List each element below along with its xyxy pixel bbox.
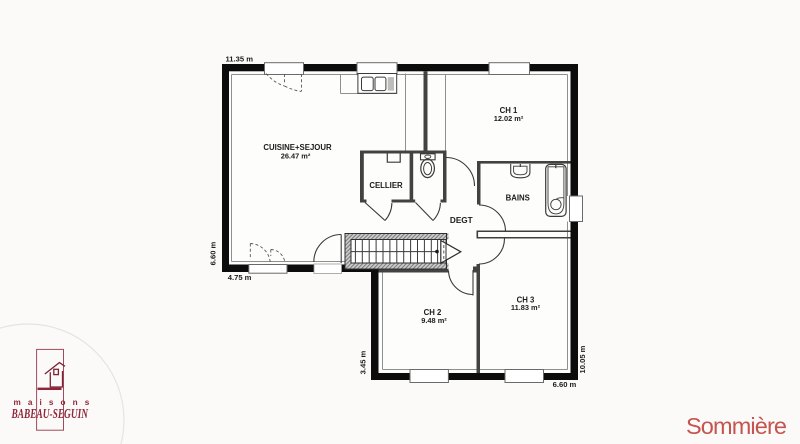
- svg-text:BAINS: BAINS: [506, 194, 530, 203]
- svg-text:BABEAU-SEGUIN: BABEAU-SEGUIN: [11, 407, 89, 422]
- svg-text:26.47 m²: 26.47 m²: [281, 152, 311, 161]
- svg-text:10.05 m: 10.05 m: [578, 345, 587, 373]
- svg-text:6.60 m: 6.60 m: [209, 241, 218, 265]
- svg-text:11.83 m²: 11.83 m²: [511, 303, 541, 312]
- svg-text:CELLIER: CELLIER: [369, 181, 403, 190]
- svg-text:12.02 m²: 12.02 m²: [494, 114, 524, 123]
- svg-text:maisons: maisons: [14, 398, 97, 407]
- svg-text:3.45 m: 3.45 m: [359, 350, 368, 374]
- svg-text:4.75 m: 4.75 m: [228, 273, 252, 282]
- svg-text:Sommière: Sommière: [686, 413, 787, 439]
- svg-text:11.35 m: 11.35 m: [226, 55, 254, 64]
- svg-text:9.48 m²: 9.48 m²: [421, 316, 447, 325]
- svg-text:6.60 m: 6.60 m: [553, 380, 577, 389]
- svg-text:DEGT: DEGT: [450, 216, 473, 225]
